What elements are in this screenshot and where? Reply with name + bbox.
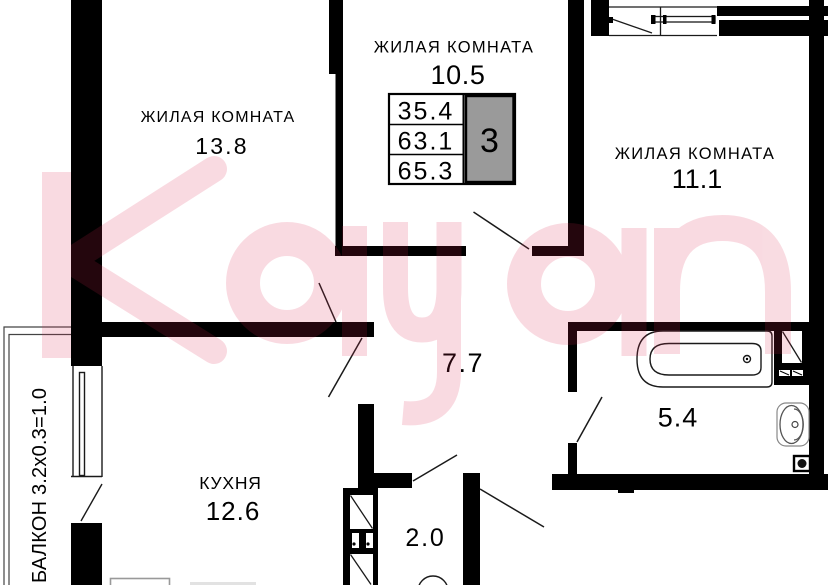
svg-text:5.4: 5.4: [658, 403, 699, 433]
svg-text:63.1: 63.1: [398, 128, 455, 156]
svg-text:65.3: 65.3: [398, 158, 455, 186]
svg-text:ЖИЛАЯ КОМНАТА: ЖИЛАЯ КОМНАТА: [374, 39, 535, 57]
svg-text:13.8: 13.8: [195, 133, 249, 159]
svg-text:2.0: 2.0: [405, 524, 445, 552]
svg-text:35.4: 35.4: [398, 98, 455, 126]
svg-text:12.6: 12.6: [206, 496, 261, 526]
svg-text:10.5: 10.5: [431, 60, 486, 90]
svg-text:БАЛКОН 3.2х0.3=1.0: БАЛКОН 3.2х0.3=1.0: [29, 388, 51, 583]
svg-text:КУХНЯ: КУХНЯ: [199, 473, 261, 493]
svg-text:11.1: 11.1: [672, 164, 723, 194]
svg-text:ЖИЛАЯ КОМНАТА: ЖИЛАЯ КОМНАТА: [615, 145, 776, 163]
svg-text:3: 3: [480, 122, 499, 160]
svg-text:ЖИЛАЯ КОМНАТА: ЖИЛАЯ КОМНАТА: [141, 109, 296, 126]
